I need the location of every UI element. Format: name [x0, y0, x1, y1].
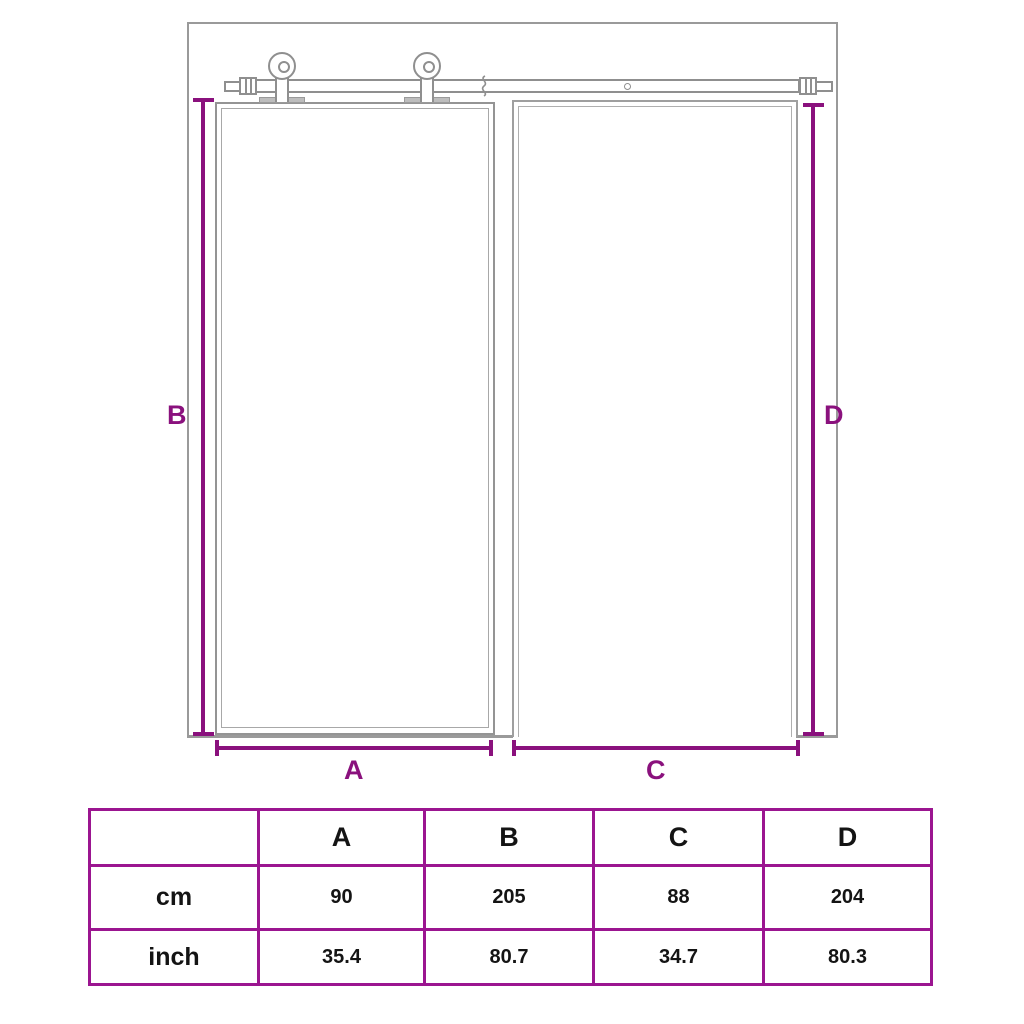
product-dimension-diagram: A B C D A B C D cm 90 205 88 204 inch 35…	[0, 0, 1024, 1024]
stopper-groove	[810, 79, 812, 93]
dimension-label-C: C	[646, 757, 666, 784]
rail-end-stopper-left	[239, 77, 257, 95]
dimension-line-D	[811, 104, 815, 736]
dimension-cap	[803, 732, 824, 736]
value-inch-D: 80.3	[764, 930, 932, 985]
floor-line-left	[187, 735, 513, 738]
dimension-cap	[796, 740, 800, 756]
table-row-cm: cm 90 205 88 204	[90, 865, 932, 929]
dimension-line-A	[215, 746, 493, 750]
dimension-cap	[803, 103, 824, 107]
table-header-D: D	[764, 810, 932, 866]
stopper-groove	[245, 79, 247, 93]
value-cm-C: 88	[594, 865, 764, 929]
door-opening-frame-inner	[518, 106, 792, 737]
value-inch-C: 34.7	[594, 930, 764, 985]
dimension-label-B: B	[167, 402, 187, 429]
dimension-cap	[193, 98, 214, 102]
dimension-cap	[193, 732, 214, 736]
wheel-hub-icon	[423, 61, 435, 73]
value-inch-A: 35.4	[259, 930, 425, 985]
sliding-rail	[255, 79, 800, 93]
table-header-C: C	[594, 810, 764, 866]
value-cm-D: 204	[764, 865, 932, 929]
table-header-A: A	[259, 810, 425, 866]
roller-wheel-right-icon	[413, 52, 441, 80]
stopper-groove	[250, 79, 252, 93]
stopper-groove	[805, 79, 807, 93]
dimension-cap	[215, 740, 219, 756]
rail-break-mark-icon	[476, 75, 492, 97]
rail-end-tip-right	[815, 81, 833, 92]
value-inch-B: 80.7	[425, 930, 594, 985]
value-cm-A: 90	[259, 865, 425, 929]
table-header-row: A B C D	[90, 810, 932, 866]
value-cm-B: 205	[425, 865, 594, 929]
rail-screw-hole-icon	[624, 83, 631, 90]
dimension-label-A: A	[344, 757, 364, 784]
row-label-cm: cm	[90, 865, 259, 929]
wheel-hub-icon	[278, 61, 290, 73]
rail-end-stopper-right	[799, 77, 817, 95]
dimension-cap	[512, 740, 516, 756]
row-label-inch: inch	[90, 930, 259, 985]
dimension-line-B	[201, 100, 205, 736]
dimension-line-C	[512, 746, 800, 750]
dimension-cap	[489, 740, 493, 756]
dimension-table: A B C D cm 90 205 88 204 inch 35.4 80.7 …	[88, 808, 933, 986]
table-header-B: B	[425, 810, 594, 866]
roller-wheel-left-icon	[268, 52, 296, 80]
table-row-inch: inch 35.4 80.7 34.7 80.3	[90, 930, 932, 985]
door-panel-inner-frame	[221, 108, 489, 728]
dimension-label-D: D	[824, 402, 844, 429]
table-corner-cell	[90, 810, 259, 866]
